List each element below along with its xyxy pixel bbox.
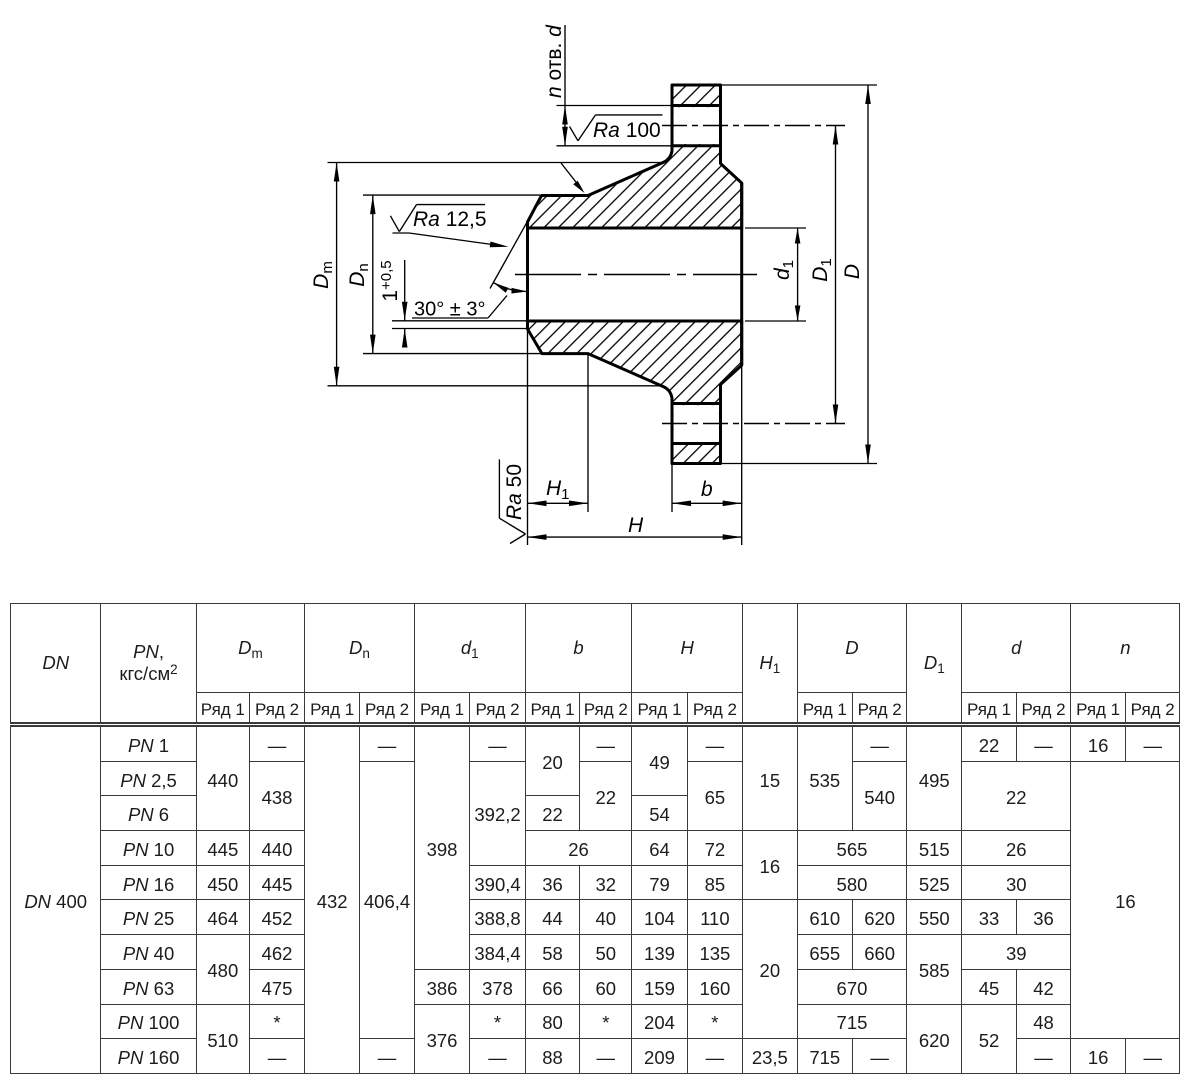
svg-text:Dn: Dn [346, 263, 372, 287]
svg-text:H1: H1 [546, 477, 570, 503]
svg-text:Ra 50: Ra 50 [503, 464, 526, 520]
svg-text:b: b [701, 478, 713, 501]
svg-text:Dm: Dm [310, 261, 336, 289]
svg-text:Ra 100: Ra 100 [593, 119, 661, 142]
svg-text:30° ± 3°: 30° ± 3° [414, 298, 485, 320]
svg-text:d1: d1 [771, 260, 797, 280]
svg-text:n отв. d: n отв. d [543, 24, 566, 98]
svg-text:1+0,5: 1+0,5 [378, 260, 402, 301]
svg-text:Ra 12,5: Ra 12,5 [413, 208, 487, 231]
svg-text:D: D [841, 264, 864, 279]
svg-text:H: H [628, 514, 644, 537]
svg-text:D1: D1 [809, 258, 835, 282]
